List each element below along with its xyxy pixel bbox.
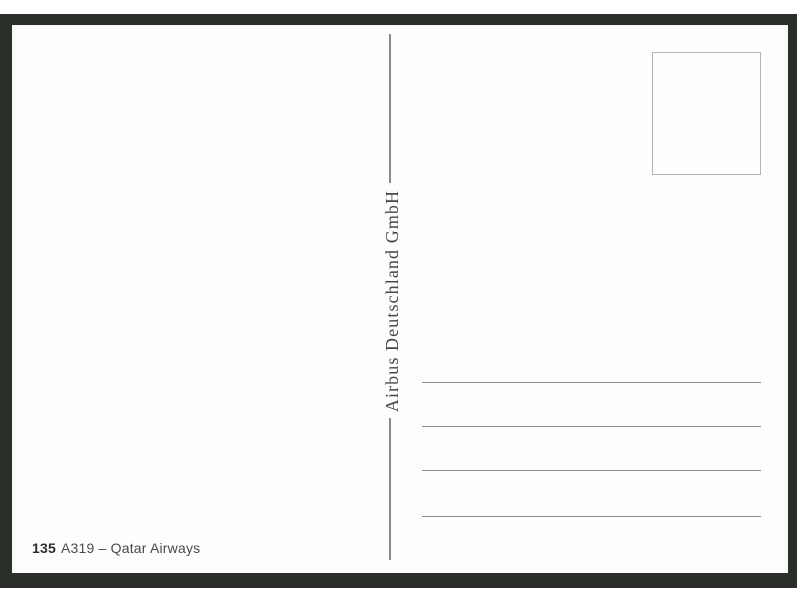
- postcard-photo: Airbus Deutschland GmbH 135A319 – Qatar …: [0, 0, 800, 600]
- caption-title: A319 – Qatar Airways: [61, 540, 200, 556]
- divider-line-top: [389, 34, 391, 183]
- postcard-back: Airbus Deutschland GmbH 135A319 – Qatar …: [12, 25, 788, 573]
- address-line: [422, 426, 761, 427]
- caption-number: 135: [32, 540, 56, 556]
- address-line: [422, 516, 761, 517]
- stamp-box: [652, 52, 761, 175]
- address-line: [422, 470, 761, 471]
- divider-line-bottom: [389, 418, 391, 560]
- address-line: [422, 382, 761, 383]
- caption: 135A319 – Qatar Airways: [32, 539, 200, 557]
- publisher-vertical-text: Airbus Deutschland GmbH: [382, 185, 402, 417]
